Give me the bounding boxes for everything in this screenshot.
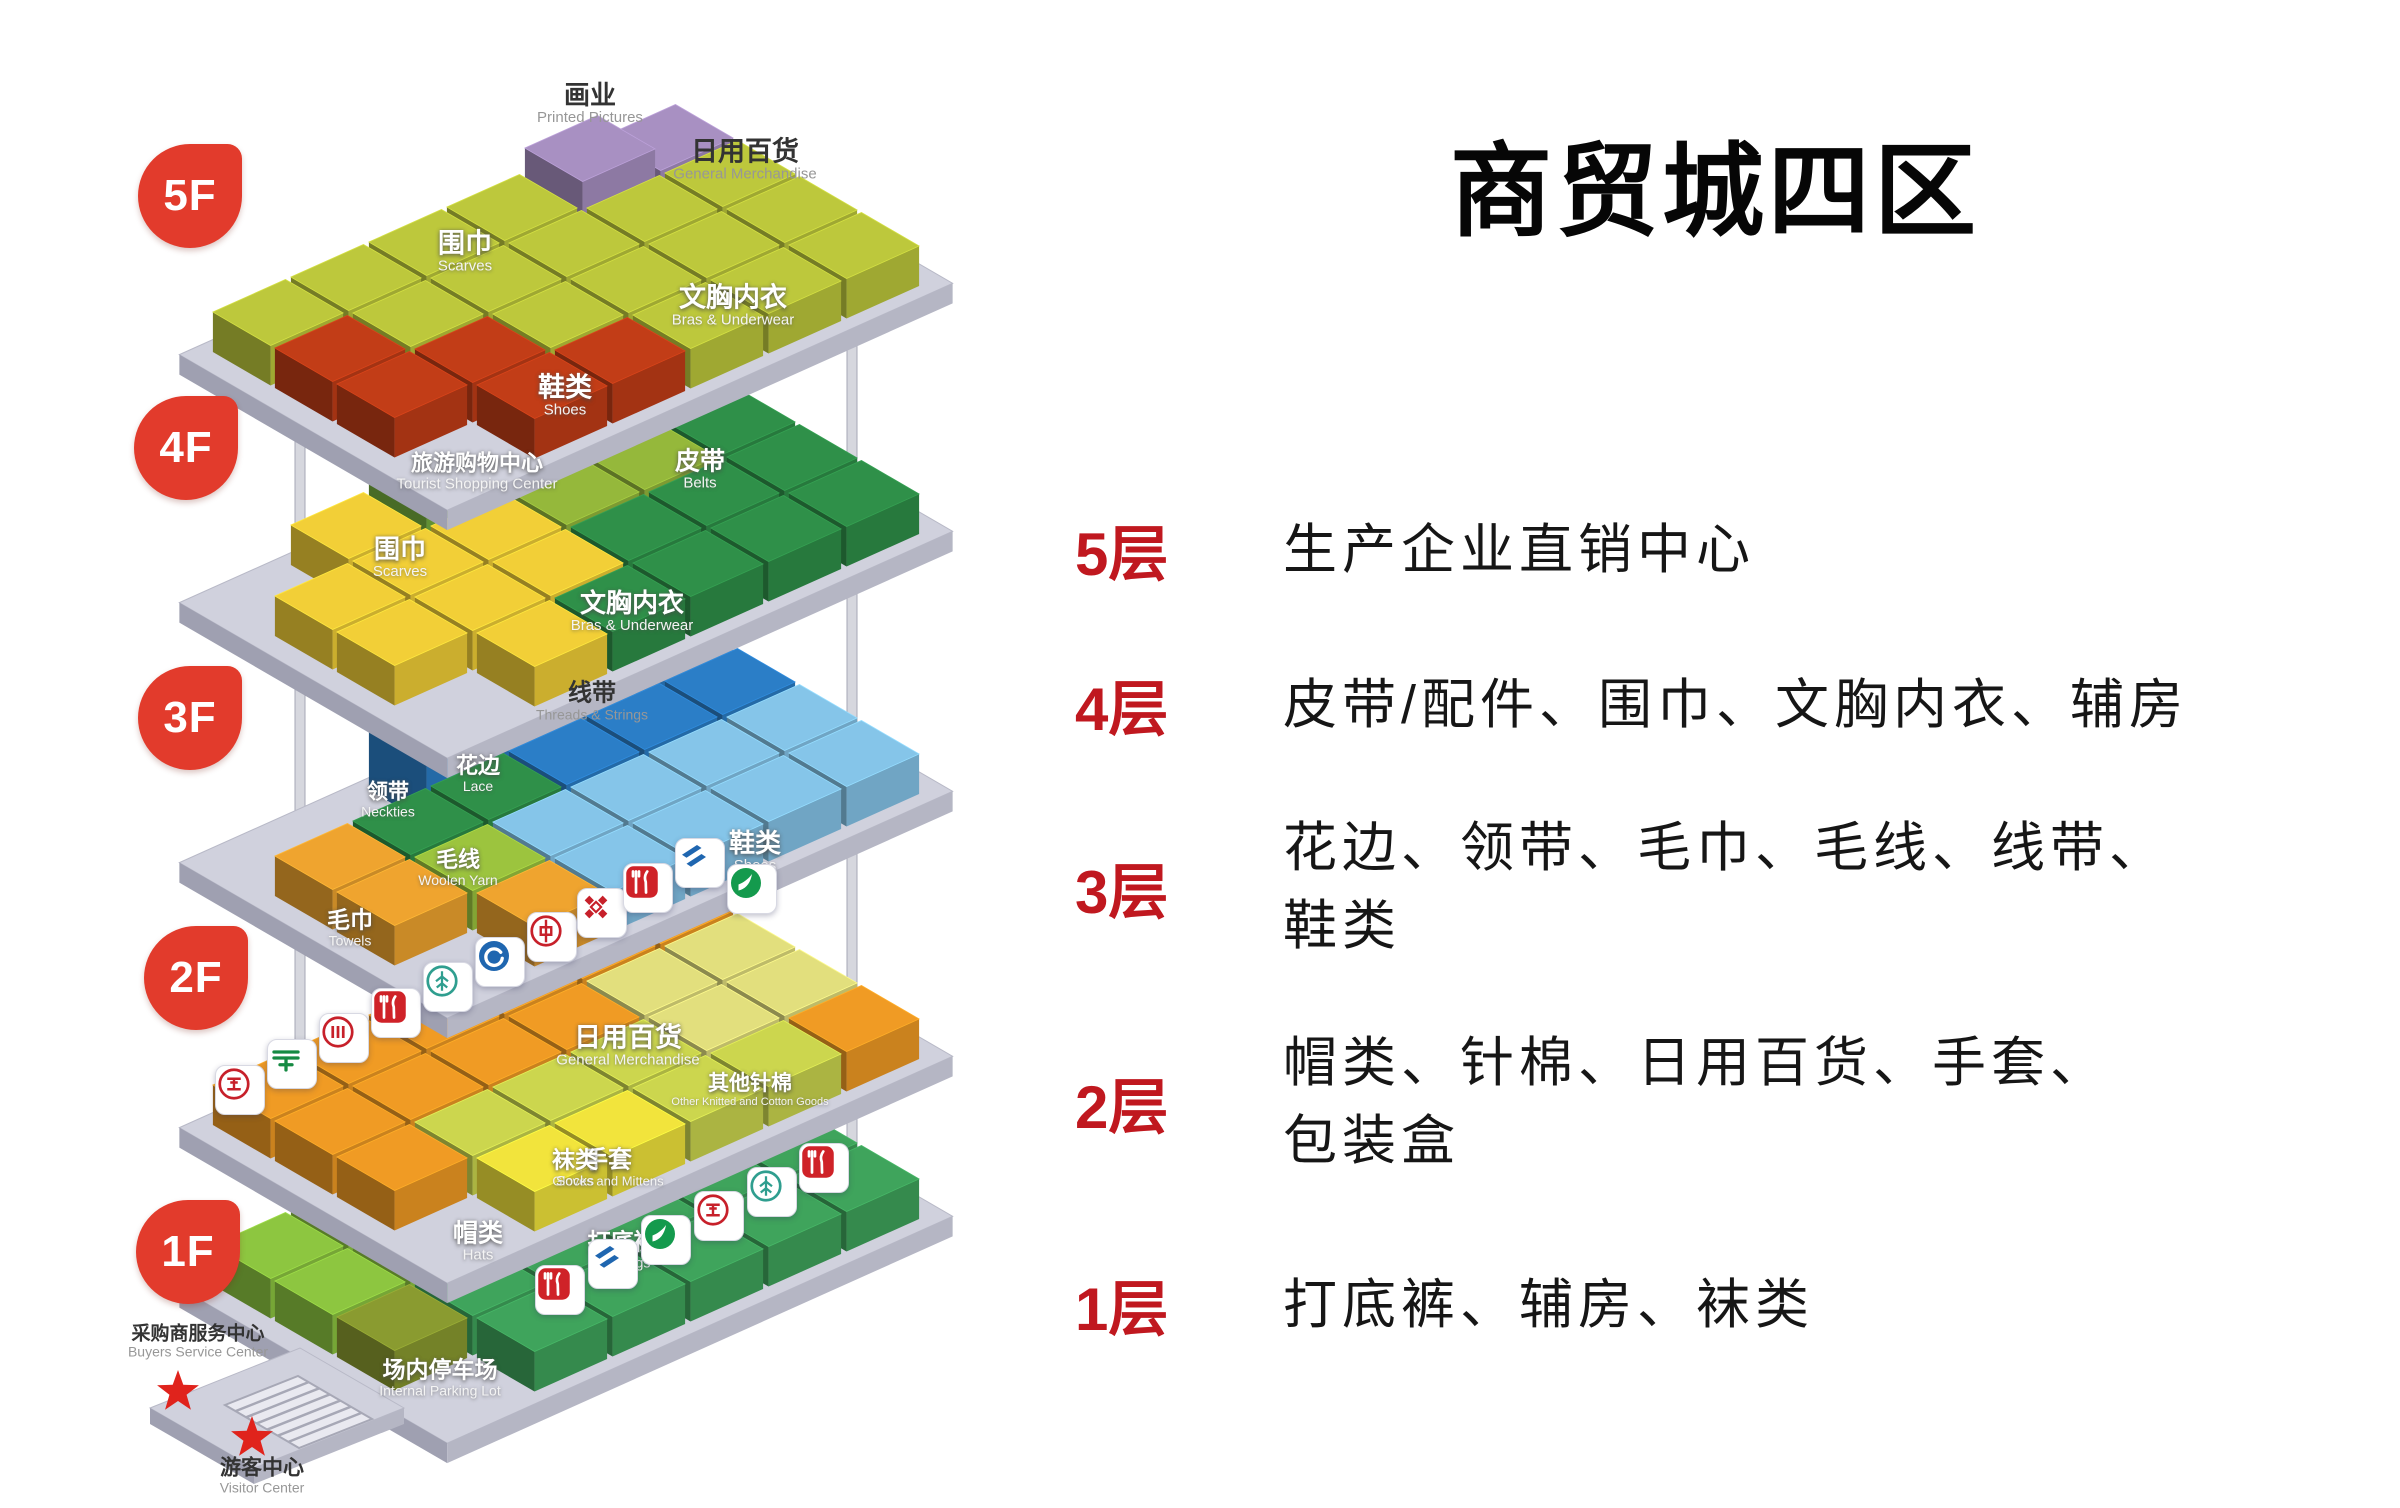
bank-bars-icon-glyph <box>320 1014 356 1050</box>
floor-badge-3f: 3F <box>138 666 242 770</box>
ccb-bank-icon <box>675 838 725 888</box>
green-swirl-bank-icon <box>727 864 777 914</box>
restaurant-icon-glyph <box>624 864 660 900</box>
abc-bank-icon-glyph <box>424 963 460 999</box>
green-swirl-bank-icon <box>641 1215 691 1265</box>
label-scarves-4f: 围巾Scarves <box>373 535 427 581</box>
restaurant-icon-glyph <box>800 1144 836 1180</box>
label-visitor-center-zh: 游客中心 <box>220 1456 305 1480</box>
label-visitor-center-en: Visitor Center <box>220 1480 305 1496</box>
bank-of-china-icon-glyph <box>528 913 564 949</box>
label-scarves-5f-zh: 围巾 <box>438 228 492 258</box>
label-scarves-5f: 围巾Scarves <box>438 228 492 275</box>
label-towels: 毛巾Towels <box>327 907 373 948</box>
green-swirl-bank-icon-glyph <box>728 865 764 901</box>
legend-floor-label: 3层 <box>1075 844 1283 931</box>
label-other-knitted-cotton: 其他针棉Other Knitted and Cotton Goods <box>671 1072 828 1108</box>
unionpay-knot-icon-glyph <box>578 889 614 925</box>
legend-desc: 帽类、针棉、日用百货、手套、 <box>1283 1024 2109 1102</box>
label-tourist-shopping-center: 旅游购物中心Tourist Shopping Center <box>397 451 558 492</box>
label-hats-en: Hats <box>453 1248 503 1265</box>
screenshot-root: 5F画业Printed Pictures日用百货General Merchand… <box>0 0 2400 1508</box>
floor-badge-5f: 5F <box>138 144 242 248</box>
green-swirl-bank-icon-glyph <box>642 1216 678 1252</box>
unionpay-knot-icon <box>577 888 627 938</box>
label-buyers-service-center-en: Buyers Service Center <box>128 1345 268 1361</box>
label-woolen-yarn: 毛线Woolen Yarn <box>418 848 497 888</box>
icbc-bank-icon <box>215 1065 265 1115</box>
legend-floor-label: 2层 <box>1075 1059 1283 1146</box>
floor-badge-text: 1F <box>161 1227 214 1277</box>
label-internal-parking-lot-en: Internal Parking Lot <box>379 1383 500 1399</box>
legend-desc: 打底裤、辅房、袜类 <box>1283 1266 1814 1344</box>
restaurant-icon <box>799 1143 849 1193</box>
restaurant-icon <box>535 1265 585 1315</box>
floor-badge-1f: 1F <box>136 1200 240 1304</box>
label-internal-parking-lot: 场内停车场Internal Parking Lot <box>379 1357 500 1398</box>
label-printed-pictures: 画业Printed Pictures <box>537 81 643 127</box>
label-bras-underwear-4f: 文胸内衣Bras & Underwear <box>571 589 694 635</box>
restaurant-icon <box>371 988 421 1038</box>
abc-bank-icon <box>747 1167 797 1217</box>
ccb-bank-icon-glyph <box>676 839 712 875</box>
legend-desc: 包装盒 <box>1283 1102 2109 1180</box>
label-hats-zh: 帽类 <box>453 1220 503 1248</box>
legend-desc: 皮带/配件、围巾、文胸内衣、辅房 <box>1283 666 2188 744</box>
legend-desc: 生产企业直销中心 <box>1283 511 1755 589</box>
label-socks: 袜类Socks <box>552 1147 598 1188</box>
label-woolen-yarn-en: Woolen Yarn <box>418 872 497 888</box>
ccb-bank-icon-glyph <box>589 1240 625 1276</box>
label-scarves-4f-zh: 围巾 <box>373 535 427 564</box>
legend-row-2f: 2层 帽类、针棉、日用百货、手套、 包装盒 <box>1075 1024 2109 1180</box>
icbc-bank-icon-glyph <box>216 1066 252 1102</box>
legend-floor-label: 1层 <box>1075 1261 1283 1348</box>
label-general-merchandise-5f-zh: 日用百货 <box>673 136 816 166</box>
label-threads-strings-zh: 线带 <box>536 681 648 708</box>
floor-badge-text: 4F <box>159 423 212 473</box>
label-internal-parking-lot-zh: 场内停车场 <box>379 1357 500 1383</box>
restaurant-icon <box>623 863 673 913</box>
legend-desc: 花边、领带、毛巾、毛线、线带、 <box>1283 809 2168 887</box>
label-general-merchandise-5f-en: General Merchandise <box>673 167 816 184</box>
label-other-knitted-cotton-zh: 其他针棉 <box>671 1072 828 1096</box>
abc-bank-icon-glyph <box>748 1168 784 1204</box>
label-bras-underwear-4f-en: Bras & Underwear <box>571 618 694 635</box>
label-buyers-service-center-zh: 采购商服务中心 <box>128 1324 268 1345</box>
label-lace-zh: 花边 <box>456 754 500 779</box>
label-scarves-5f-en: Scarves <box>438 259 492 276</box>
label-lace: 花边Lace <box>456 754 500 794</box>
label-printed-pictures-zh: 画业 <box>537 81 643 110</box>
label-threads-strings: 线带Threads & Strings <box>536 681 648 724</box>
label-towels-zh: 毛巾 <box>327 907 373 933</box>
label-scarves-4f-en: Scarves <box>373 564 427 581</box>
floor-badge-text: 3F <box>163 693 216 743</box>
label-threads-strings-en: Threads & Strings <box>536 708 648 724</box>
legend-floor-label: 4层 <box>1075 661 1283 748</box>
label-hats: 帽类Hats <box>453 1220 503 1265</box>
bank-bars-icon <box>319 1013 369 1063</box>
label-general-merchandise-2f-zh: 日用百货 <box>556 1022 699 1052</box>
label-printed-pictures-en: Printed Pictures <box>537 110 643 127</box>
label-tourist-shopping-center-en: Tourist Shopping Center <box>397 476 558 493</box>
label-belts-en: Belts <box>675 476 725 493</box>
label-bras-underwear-5f-en: Bras & Underwear <box>672 313 795 330</box>
label-shoes-5f-zh: 鞋类 <box>538 372 592 402</box>
legend-row-5f: 5层 生产企业直销中心 <box>1075 506 1755 593</box>
label-other-knitted-cotton-en: Other Knitted and Cotton Goods <box>671 1096 828 1108</box>
label-general-merchandise-5f: 日用百货General Merchandise <box>673 136 816 183</box>
label-belts: 皮带Belts <box>675 448 725 493</box>
label-shoes-5f: 鞋类Shoes <box>538 372 592 419</box>
label-bras-underwear-5f: 文胸内衣Bras & Underwear <box>672 282 795 329</box>
legend-desc: 鞋类 <box>1283 887 2168 965</box>
abc-bank-icon <box>423 962 473 1012</box>
label-belts-zh: 皮带 <box>675 448 725 476</box>
china-post-icon <box>267 1039 317 1089</box>
ccb-bank-icon <box>588 1239 638 1289</box>
label-towels-en: Towels <box>327 933 373 949</box>
label-neckties-zh: 领带 <box>361 780 415 804</box>
blue-swirl-bank-icon <box>475 937 525 987</box>
label-neckties-en: Neckties <box>361 804 415 820</box>
icbc-bank-icon-glyph <box>695 1192 731 1228</box>
label-shoes-5f-en: Shoes <box>538 403 592 420</box>
legend-row-1f: 1层 打底裤、辅房、袜类 <box>1075 1261 1814 1348</box>
restaurant-icon-glyph <box>372 989 408 1025</box>
label-socks-en: Socks <box>552 1173 598 1189</box>
label-tourist-shopping-center-zh: 旅游购物中心 <box>397 451 558 476</box>
label-general-merchandise-2f: 日用百货General Merchandise <box>556 1022 699 1069</box>
floor-badge-text: 2F <box>169 953 222 1003</box>
legend-floor-label: 5层 <box>1075 506 1283 593</box>
icbc-bank-icon <box>694 1191 744 1241</box>
legend-row-3f: 3层 花边、领带、毛巾、毛线、线带、 鞋类 <box>1075 809 2168 965</box>
label-shoes-3f-zh: 鞋类 <box>729 829 781 858</box>
blue-swirl-bank-icon-glyph <box>476 938 512 974</box>
label-bras-underwear-5f-zh: 文胸内衣 <box>672 282 795 312</box>
china-post-icon-glyph <box>268 1040 304 1076</box>
restaurant-icon-glyph <box>536 1266 572 1302</box>
floor-badge-4f: 4F <box>134 396 238 500</box>
label-woolen-yarn-zh: 毛线 <box>418 848 497 873</box>
label-buyers-service-center: 采购商服务中心Buyers Service Center <box>128 1324 268 1361</box>
label-bras-underwear-4f-zh: 文胸内衣 <box>571 589 694 618</box>
legend-row-4f: 4层 皮带/配件、围巾、文胸内衣、辅房 <box>1075 661 2188 748</box>
label-neckties: 领带Neckties <box>361 780 415 819</box>
floor-badge-text: 5F <box>163 171 216 221</box>
page-title: 商贸城四区 <box>1320 110 2110 257</box>
label-socks-zh: 袜类 <box>552 1147 598 1173</box>
label-lace-en: Lace <box>456 778 500 794</box>
label-general-merchandise-2f-en: General Merchandise <box>556 1053 699 1070</box>
floor-badge-2f: 2F <box>144 926 248 1030</box>
bank-of-china-icon <box>527 912 577 962</box>
label-visitor-center: 游客中心Visitor Center <box>220 1456 305 1495</box>
